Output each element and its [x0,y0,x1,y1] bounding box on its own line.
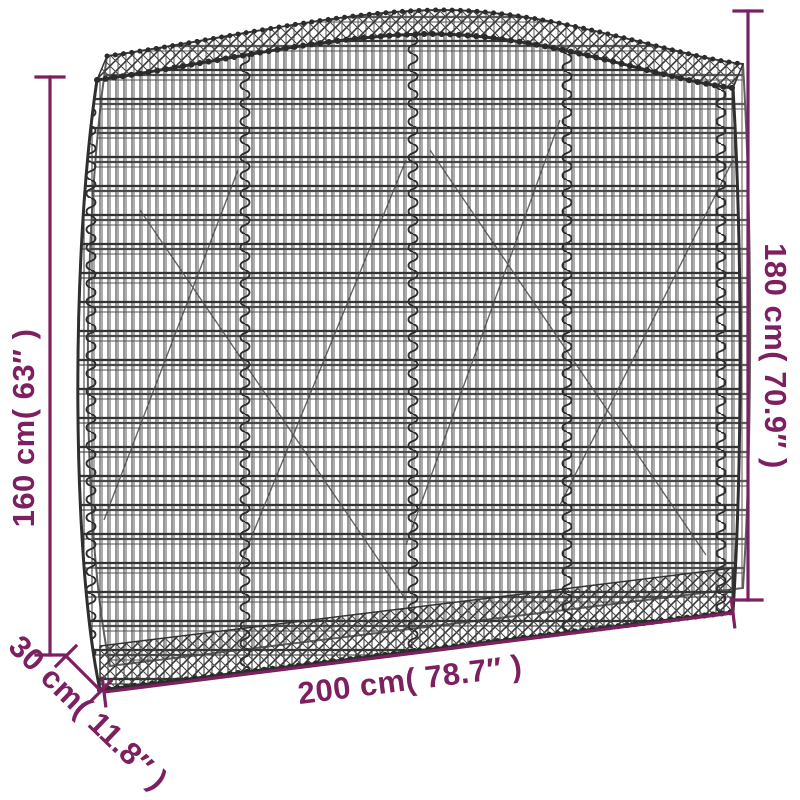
product-dimension-diagram: 160 cm( 63″ ) 180 cm( 70.9″ ) 200 cm( 78… [0,0,800,800]
height-right-label: 180 cm( 70.9″ ) [755,184,795,528]
height-left-label: 160 cm( 63″ ) [4,268,44,588]
